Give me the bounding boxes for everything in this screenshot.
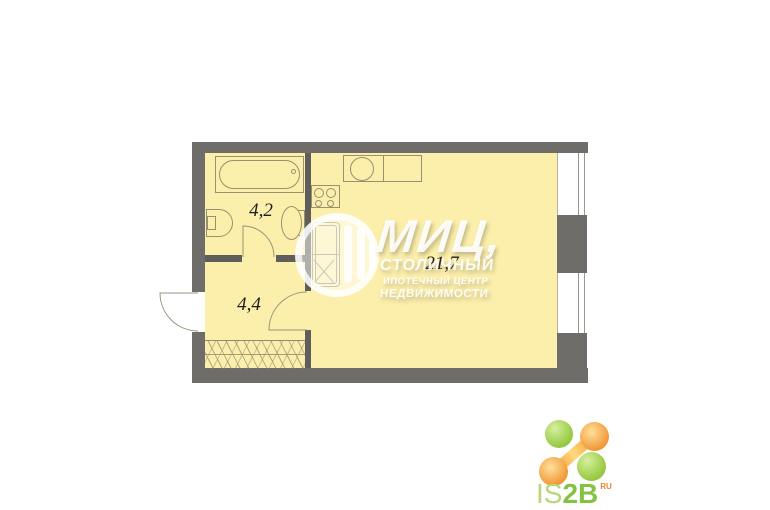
- mits-emblem-bar: [369, 238, 374, 270]
- is2b-green-ball: [577, 452, 606, 481]
- mits-emblem-bar: [344, 225, 352, 283]
- is2b-logo-text: IS2BRU: [536, 478, 612, 510]
- bathroom-door-icon: [243, 226, 274, 257]
- is2b-text-2b: 2B: [562, 478, 598, 509]
- watermark-subtitle: СТОЛИЧНЫЙ: [379, 257, 495, 275]
- watermark-line3: ИПОТЕЧНЫЙ ЦЕНТР: [382, 276, 488, 287]
- mits-watermark-emblem: [295, 213, 379, 297]
- is2b-text-sup: RU: [600, 482, 612, 491]
- is2b-orange-ball: [580, 422, 609, 451]
- hallway-door-icon: [269, 292, 307, 330]
- hallway-area-label: 4,4: [226, 294, 272, 316]
- watermark-title: МИЦ,: [374, 209, 505, 263]
- floorplan-image: 4,2 4,4 21,7 МИЦ, СТОЛИЧНЫЙ ИПОТЕЧНЫЙ ЦЕ…: [0, 0, 770, 510]
- bathroom-area-label: 4,2: [238, 200, 284, 222]
- entrance-door-icon: [160, 293, 198, 331]
- is2b-green-ball: [545, 420, 573, 448]
- mits-emblem-bar: [357, 228, 365, 280]
- watermark-line4: НЕДВИЖИМОСТИ: [379, 288, 489, 300]
- is2b-text-is: IS: [536, 478, 562, 509]
